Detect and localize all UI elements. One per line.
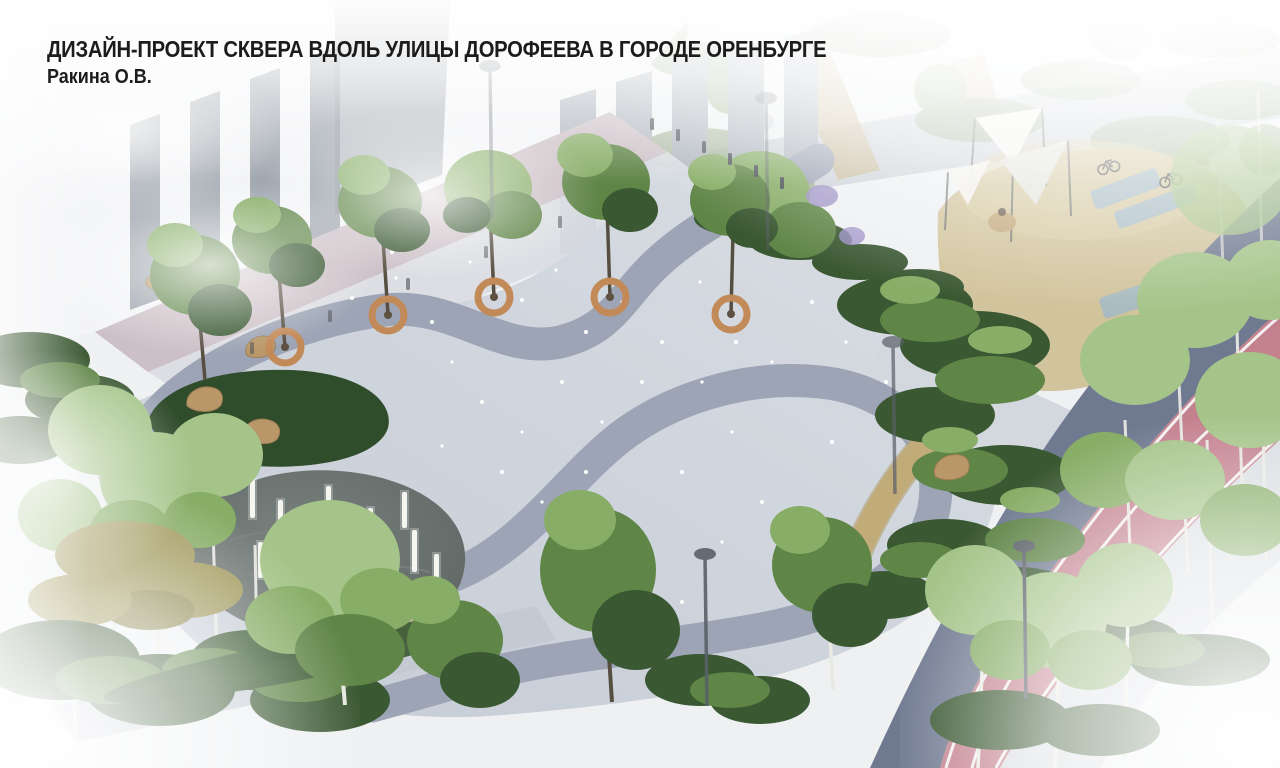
shrub: [935, 356, 1045, 404]
twinkle-light: [520, 298, 524, 302]
light-column: [402, 492, 407, 528]
tree-canopy: [440, 652, 520, 708]
twinkle-light: [884, 380, 888, 384]
tree-canopy: [400, 576, 460, 624]
square-design-render: [0, 0, 1280, 768]
fog-left-edge: [0, 0, 90, 768]
tree-canopy: [592, 590, 680, 670]
twinkle-light: [540, 500, 543, 503]
light-column: [412, 530, 417, 572]
twinkle-light: [680, 470, 684, 474]
tree-canopy: [770, 506, 830, 554]
twinkle-light: [720, 540, 723, 543]
twinkle-light: [520, 430, 523, 433]
twinkle-light: [560, 380, 564, 384]
twinkle-light: [830, 440, 834, 444]
tree-canopy: [544, 490, 616, 550]
twinkle-light: [430, 320, 434, 324]
tree-canopy: [812, 583, 888, 647]
twinkle-light: [700, 380, 703, 383]
twinkle-light: [500, 470, 504, 474]
twinkle-light: [584, 470, 588, 474]
caption-block: ДИЗАЙН-ПРОЕКТ СКВЕРА ВДОЛЬ УЛИЦЫ ДОРОФЕЕ…: [47, 36, 933, 89]
twinkle-light: [760, 500, 764, 504]
twinkle-light: [480, 400, 484, 404]
bollard: [406, 278, 410, 290]
project-author: Ракина О.В.: [47, 66, 844, 89]
twinkle-light: [730, 430, 733, 433]
twinkle-light: [440, 444, 443, 447]
twinkle-light: [584, 330, 588, 334]
project-title: ДИЗАЙН-ПРОЕКТ СКВЕРА ВДОЛЬ УЛИЦЫ ДОРОФЕЕ…: [47, 36, 826, 63]
render-canvas: ДИЗАЙН-ПРОЕКТ СКВЕРА ВДОЛЬ УЛИЦЫ ДОРОФЕЕ…: [0, 0, 1280, 768]
twinkle-light: [554, 268, 557, 271]
twinkle-light: [600, 420, 603, 423]
shrub: [690, 672, 770, 708]
twinkle-light: [450, 360, 453, 363]
twinkle-light: [680, 600, 684, 604]
twinkle-light: [640, 380, 644, 384]
twinkle-light: [770, 360, 773, 363]
fog-bottom-right: [900, 420, 1280, 768]
